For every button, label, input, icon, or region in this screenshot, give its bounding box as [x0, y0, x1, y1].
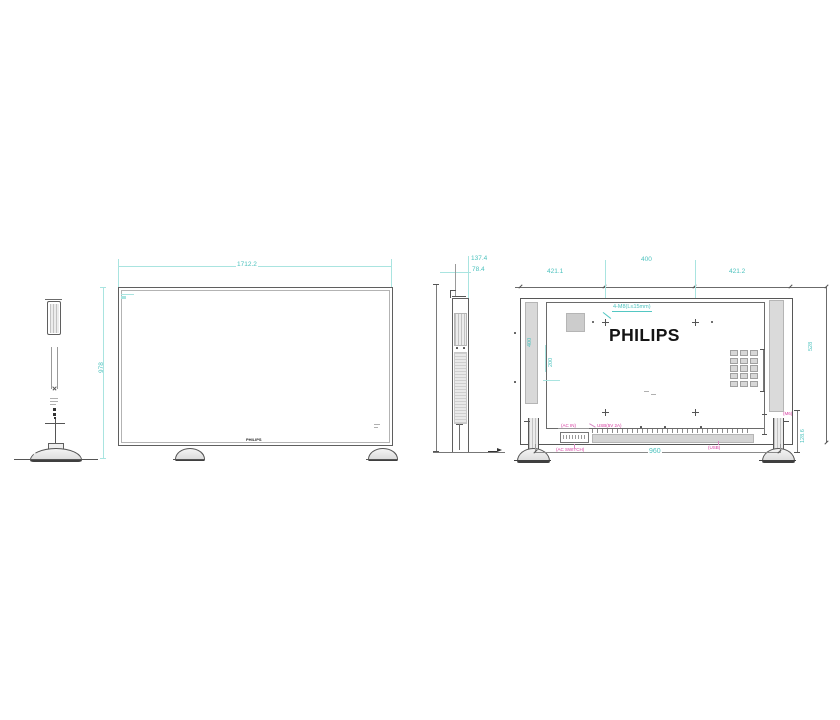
rear-dim-top-center: 400 [640, 256, 653, 263]
io-dot-1 [640, 426, 642, 428]
connector-cell [740, 365, 748, 371]
rear-foot-left-tick [524, 421, 530, 422]
rear-vesa-vertical-dimension: 400 [527, 337, 534, 348]
side-foot-pole [459, 424, 460, 450]
io-dot-2 [664, 426, 666, 428]
connector-cell [750, 358, 758, 364]
rear-left-screw-2 [514, 381, 516, 383]
rear-left-screw-1 [514, 332, 516, 334]
connector-cell [740, 358, 748, 364]
front-dim-ext-right [391, 259, 392, 287]
rear-io-bar [592, 434, 754, 443]
rear-io-tick-row [592, 429, 752, 433]
connector-cell [730, 358, 738, 364]
rear-center-ref-line [543, 380, 560, 381]
rear-foot-height-dimension: 128.6 [800, 428, 807, 444]
front-dim-tick-top [100, 287, 106, 288]
side-hook-vertical [450, 290, 451, 298]
usb-power-label: USB(5V 2A) [597, 423, 622, 428]
ac-switch-leader [574, 444, 575, 448]
side-depth-total-dimension: 137.4 [470, 255, 488, 262]
rear-rating-label [566, 313, 585, 332]
stand-spacer-1 [53, 408, 56, 411]
connector-cell [750, 365, 758, 371]
rear-foot-small-dim [764, 414, 765, 434]
rear-dim-top-right: 421.2 [728, 268, 746, 275]
direction-arrow-shaft [488, 451, 497, 452]
front-bottom-logo: PHILIPS [246, 437, 262, 442]
rear-overall-height-line [826, 287, 827, 443]
rear-dim-top-left: 421.1 [546, 268, 564, 275]
screw-label: (M6) [783, 411, 792, 416]
rear-foot-right-post [773, 418, 784, 450]
rear-right-strip [769, 300, 784, 412]
side-depth-body-dimension: 78.4 [471, 266, 486, 273]
stand-cap-line [45, 299, 62, 300]
usb-label: (USB) [708, 445, 720, 450]
stand-base-dome [30, 448, 82, 462]
side-screw-dot-1 [456, 347, 458, 349]
ac-terminal-bracket [558, 428, 589, 429]
front-indicator-mark-1 [374, 424, 380, 425]
front-dim-tick-bottom [100, 458, 106, 459]
connector-cell [740, 373, 748, 379]
connector-cell [750, 373, 758, 379]
usb-leader [718, 441, 719, 445]
rear-foot-right-ground [759, 460, 796, 461]
connector-cell [740, 381, 748, 387]
direction-arrow-icon [497, 448, 502, 452]
rear-connector-bracket [763, 349, 764, 392]
io-dot-3 [700, 426, 702, 428]
rear-center-mark-1 [644, 391, 649, 392]
rear-bracket-tick-top [760, 349, 765, 350]
ac-in-label: (AC IN) [561, 423, 576, 428]
side-upper-module [454, 313, 467, 346]
stand-spacer-2 [53, 413, 56, 416]
connector-cell [730, 381, 738, 387]
stand-pole-line-left [51, 347, 52, 389]
rear-vesa-half-line [545, 345, 546, 372]
side-overall-height-line [436, 284, 437, 452]
rear-foot-height-tick-bottom [794, 452, 800, 453]
side-ground-line [433, 452, 505, 453]
front-dim-ext-left [118, 259, 119, 287]
connector-cell [730, 365, 738, 371]
side-height-tick-top [433, 284, 439, 285]
rear-foot-small-tick-bottom [762, 434, 767, 435]
rear-foot-left-base [517, 448, 550, 463]
front-bezel-inner-line [121, 290, 390, 443]
vesa-screw-note: 4-M8(L≤15mm) [612, 304, 652, 312]
vesa-hole-bottom-right-v [695, 409, 696, 416]
side-screw-dot-2 [463, 347, 465, 349]
vesa-hole-bottom-left-v [605, 409, 606, 416]
stand-pole-line-right [57, 347, 58, 389]
front-bezel-callout-line [121, 294, 134, 295]
rear-left-strip [525, 302, 538, 404]
stand-note-line-3 [50, 404, 56, 405]
rear-bracket-tick-bottom [760, 391, 765, 392]
rear-foot-height-line [797, 410, 798, 452]
vesa-hole-top-left-v [605, 319, 606, 326]
rear-foot-right-tick [783, 421, 789, 422]
front-foot-right-base [366, 459, 398, 460]
connector-cell [750, 381, 758, 387]
front-height-dimension: 978 [98, 361, 105, 374]
rear-bottom-width-dimension: 960 [648, 448, 662, 455]
rear-center-mark-2 [651, 394, 656, 395]
side-top-edge [452, 296, 466, 297]
dimension-drawing: 1712.2 978 PHILIPS 137.4 78.4 421 [0, 0, 840, 720]
front-foot-left-base [173, 459, 205, 460]
stand-note-line-1 [50, 398, 58, 399]
rear-vesa-half-dimension: 200 [548, 357, 555, 368]
rear-foot-left-post [528, 418, 539, 450]
philips-logo: PHILIPS [609, 325, 680, 346]
front-width-dimension: 1712.2 [236, 261, 258, 268]
front-panel [118, 287, 393, 446]
rear-foot-left-ground [514, 460, 551, 461]
connector-cell [730, 373, 738, 379]
stand-note-line-2 [50, 401, 58, 402]
side-dim-ext-line [455, 264, 456, 297]
connector-cell [730, 350, 738, 356]
ac-terminal-pins [563, 435, 585, 439]
front-bezel-callout-mark [121, 296, 126, 299]
rear-ac-terminal-box [560, 432, 589, 443]
rear-right-tick-bottom [824, 440, 828, 444]
front-indicator-mark-2 [374, 427, 378, 428]
rear-foot-height-tick-top [794, 410, 800, 411]
connector-cell [740, 350, 748, 356]
side-dim-vert-line [468, 256, 469, 298]
vesa-hole-top-right-v [695, 319, 696, 326]
stand-base-line [14, 459, 98, 460]
rear-right-height-dimension: 528 [808, 341, 815, 352]
rear-foot-small-tick-top [762, 414, 767, 415]
connector-cell [750, 350, 758, 356]
rear-dim-line-top [515, 287, 826, 288]
side-back-cover-strip [454, 352, 467, 424]
side-hook-horizontal [450, 290, 456, 291]
stand-column-top [47, 301, 61, 335]
stand-column-hatch [50, 304, 59, 333]
rear-screw-dot-right [711, 321, 713, 323]
rear-screw-dot-left [592, 321, 594, 323]
rear-connector-grid [730, 350, 758, 387]
